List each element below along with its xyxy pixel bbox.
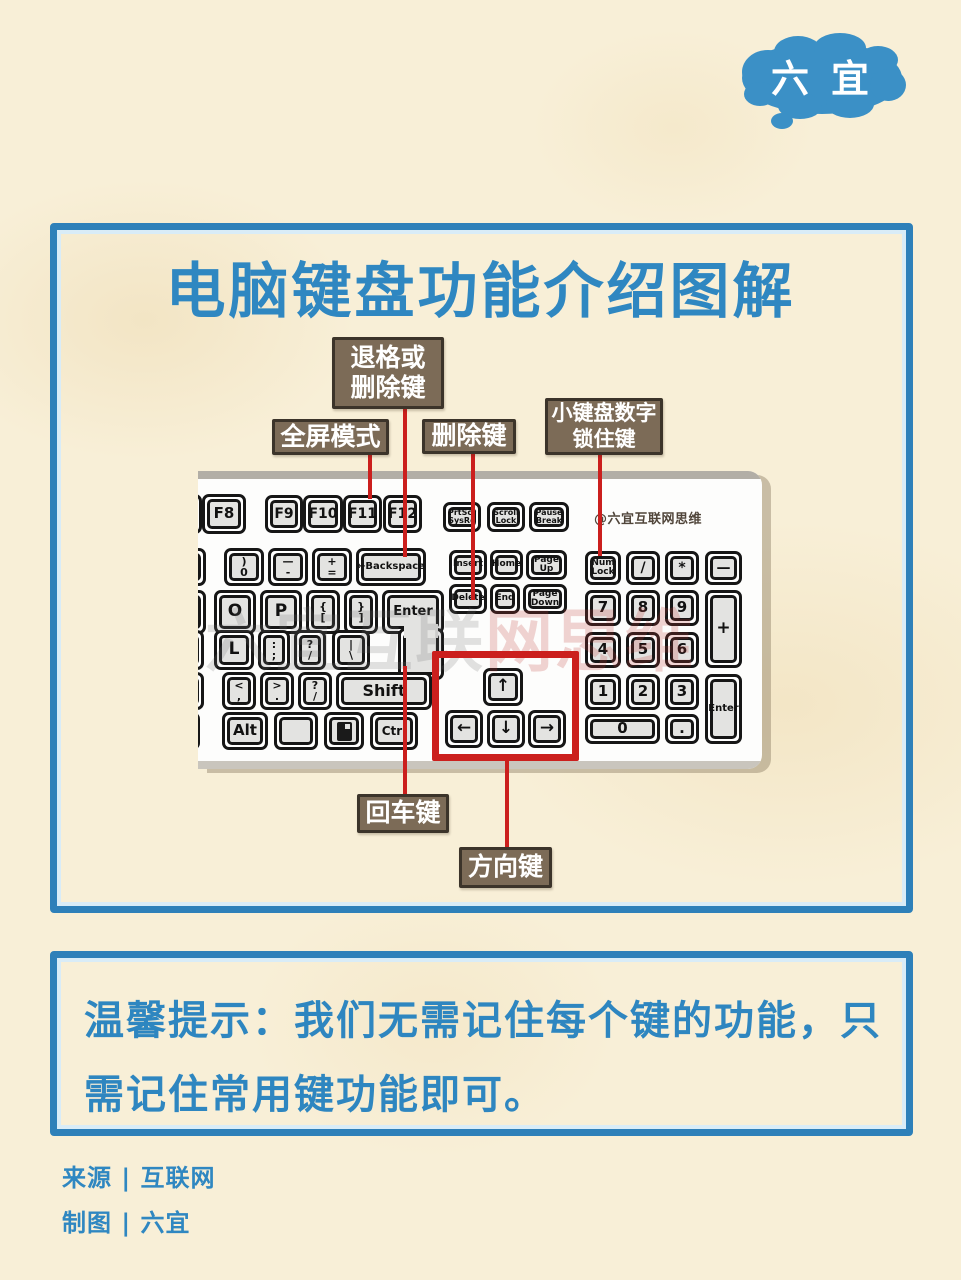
key-cut-left-shift-row-cap [198, 677, 199, 705]
logo-char-1: 六 [771, 57, 809, 101]
key-pause: PauseBreak [529, 502, 569, 532]
delete-label: 删除键 [422, 419, 516, 454]
key-page-up: PageUp [526, 550, 567, 580]
key-numpad-7-cap: 7 [590, 595, 616, 621]
key-scroll-lock: ScrollLock [487, 502, 525, 532]
tip-text-line-2: 需记住常用键功能即可。 [84, 1062, 546, 1120]
arrows-label: 方向键 [459, 847, 552, 888]
key-numpad-3: 3 [665, 674, 699, 710]
key-backslash-cap: |\ [337, 635, 365, 665]
key-home: Home [490, 550, 523, 580]
key-cut-left-shift-row [198, 672, 204, 710]
key-alt: Alt [222, 712, 268, 750]
key-numpad-minus-cap: — [710, 556, 737, 580]
key-cut-left-qwerty [198, 590, 206, 634]
backspace-line [403, 407, 407, 557]
key-period: >. [260, 672, 294, 710]
key-pause-cap: PauseBreak [534, 507, 564, 527]
key-semicolon-cap: :; [263, 635, 285, 665]
arrow-keys-highlight-box [432, 651, 579, 761]
keyboard-watermark-credit: @六宜互联网思维 [594, 508, 702, 527]
brand-logo: 六 宜 [728, 28, 912, 132]
key-equals-cap: += [317, 553, 347, 581]
key-0-cap: )0 [229, 553, 259, 581]
key-bracket-close-cap: }] [349, 595, 373, 629]
key-num-lock: NumLock [585, 551, 621, 585]
key-numpad-1: 1 [585, 674, 621, 710]
enter-line [403, 666, 407, 796]
key-l: L [214, 630, 254, 670]
key-end: End [490, 584, 520, 614]
key-backspace: ←Backspace [356, 548, 426, 586]
fullscreen-label: 全屏模式 [272, 419, 389, 455]
key-numpad-4: 4 [585, 632, 621, 668]
key-delete: Delete [449, 584, 487, 614]
poster-page: 六 宜 电脑键盘功能介绍图解 F8F9F10F11F12PrtScrSysRqS… [0, 0, 961, 1280]
key-quote-cap: ?/ [299, 635, 321, 665]
key-numpad-9-cap: 9 [670, 595, 694, 621]
key-numpad-2-cap: 2 [631, 679, 655, 705]
key-cut-left-num-cap [198, 553, 201, 581]
key-comma-cap: <, [227, 677, 251, 705]
enter-label: 回车键 [357, 794, 449, 833]
backspace-label: 退格或删除键 [332, 337, 444, 409]
key-numpad-dot-cap: . [670, 719, 694, 739]
key-numpad-4-cap: 4 [590, 637, 616, 663]
key-quote: ?/ [294, 630, 326, 670]
key-numpad-8: 8 [626, 590, 660, 626]
key-numpad-plus-cap: + [710, 595, 737, 663]
key-cut-left-home-cap [198, 635, 199, 665]
key-prtscr: PrtScrSysRq [443, 502, 481, 532]
key-f9-cap: F9 [270, 500, 298, 528]
key-delete-cap: Delete [454, 589, 482, 609]
key-ctrl-cap: Ctrl [375, 717, 413, 745]
key-period-cap: >. [265, 677, 289, 705]
key-insert-cap: Insert [454, 555, 482, 575]
key-cut-left-bottom [198, 712, 200, 750]
page-title: 电脑键盘功能介绍图解 [0, 243, 961, 330]
key-numpad-9: 9 [665, 590, 699, 626]
key-windows-cap [279, 717, 313, 745]
key-numpad-5: 5 [626, 632, 660, 668]
key-slash: ?/ [298, 672, 332, 710]
key-numpad-5-cap: 5 [631, 637, 655, 663]
key-scroll-lock-cap: ScrollLock [492, 507, 520, 527]
key-numpad-6-cap: 6 [670, 637, 694, 663]
key-cut-left-qwerty-cap [198, 595, 201, 629]
key-ctrl: Ctrl [370, 712, 418, 750]
key-f10: F10 [303, 495, 343, 533]
key-p-cap: P [265, 595, 297, 629]
key-numpad-multiply-cap: * [670, 556, 694, 580]
key-f8-cap: F8 [207, 499, 241, 529]
key-numpad-divide: / [626, 551, 660, 585]
key-numpad-0-cap: 0 [590, 719, 655, 739]
key-bracket-close: }] [344, 590, 378, 634]
key-home-cap: Home [495, 555, 518, 575]
key-numpad-enter-cap: Enter [710, 679, 737, 739]
key-0: )0 [224, 548, 264, 586]
key-shift: Shift [336, 672, 432, 710]
key-f10-cap: F10 [308, 500, 338, 528]
key-cut-left-home [198, 630, 204, 670]
key-enter-joint [404, 624, 438, 638]
key-backspace-cap: ←Backspace [361, 553, 421, 581]
key-comma: <, [222, 672, 256, 710]
key-backslash: |\ [332, 630, 370, 670]
key-numpad-enter: Enter [705, 674, 742, 744]
key-page-up-cap: PageUp [531, 555, 562, 575]
key-numpad-1-cap: 1 [590, 679, 616, 705]
key-numpad-plus: + [705, 590, 742, 668]
context-menu-icon [337, 722, 352, 741]
key-bracket-open: {[ [306, 590, 340, 634]
key-numpad-2: 2 [626, 674, 660, 710]
key-numpad-multiply: * [665, 551, 699, 585]
key-end-cap: End [495, 589, 515, 609]
key-p: P [260, 590, 302, 634]
key-cut-left-num [198, 548, 206, 586]
key-page-down-cap: PageDown [528, 589, 562, 609]
key-minus: —- [268, 548, 308, 586]
key-numpad-dot: . [665, 714, 699, 744]
key-slash-cap: ?/ [303, 677, 327, 705]
keyboard-top-edge [198, 471, 762, 479]
key-f8: F8 [202, 494, 246, 534]
tip-text-line-1: 温馨提示：我们无需记住每个键的功能，只 [84, 988, 882, 1046]
numlock-label: 小键盘数字锁住键 [545, 398, 663, 455]
key-l-cap: L [219, 635, 249, 665]
key-o: O [214, 590, 256, 634]
key-f9: F9 [265, 495, 303, 533]
keyboard-bottom-edge [198, 761, 762, 769]
key-semicolon: :; [258, 630, 290, 670]
key-menu [324, 712, 364, 750]
key-f11-cap: F11 [348, 500, 377, 528]
key-alt-cap: Alt [227, 717, 263, 745]
key-numpad-minus: — [705, 551, 742, 585]
delete-line [471, 452, 475, 600]
key-numpad-6: 6 [665, 632, 699, 668]
key-num-lock-cap: NumLock [590, 556, 616, 580]
fullscreen-line [368, 453, 372, 499]
key-f11: F11 [343, 495, 382, 533]
arrows-line [505, 755, 509, 849]
footer-credit: 制图 | 六宜 [62, 1203, 190, 1238]
key-equals: += [312, 548, 352, 586]
key-windows [274, 712, 318, 750]
key-numpad-8-cap: 8 [631, 595, 655, 621]
key-insert: Insert [449, 550, 487, 580]
key-bracket-open-cap: {[ [311, 595, 335, 629]
key-o-cap: O [219, 595, 251, 629]
key-numpad-0: 0 [585, 714, 660, 744]
key-menu-cap [329, 717, 359, 745]
key-numpad-7: 7 [585, 590, 621, 626]
footer-source: 来源 | 互联网 [62, 1158, 215, 1193]
key-numpad-3-cap: 3 [670, 679, 694, 705]
key-numpad-divide-cap: / [631, 556, 655, 580]
key-minus-cap: —- [273, 553, 303, 581]
numlock-line [598, 453, 602, 556]
key-page-down: PageDown [523, 584, 567, 614]
key-shift-cap: Shift [341, 677, 427, 705]
logo-char-2: 宜 [831, 57, 869, 101]
